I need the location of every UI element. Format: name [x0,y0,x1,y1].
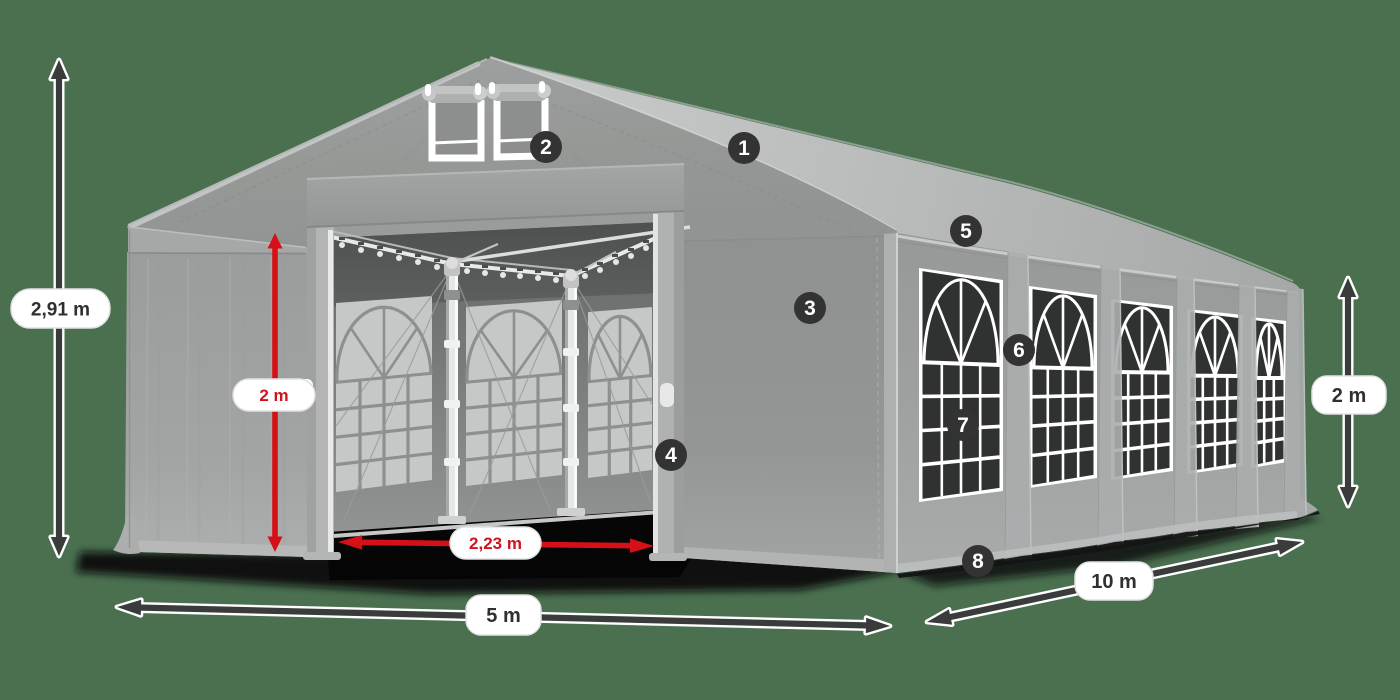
svg-text:6: 6 [1013,339,1025,362]
svg-text:2 m: 2 m [259,386,288,405]
svg-text:8: 8 [972,550,984,573]
svg-text:2,23 m: 2,23 m [469,534,522,553]
svg-text:7: 7 [957,414,969,437]
svg-text:5 m: 5 m [486,605,520,627]
svg-text:4: 4 [665,444,677,467]
svg-text:10 m: 10 m [1091,571,1137,593]
svg-text:3: 3 [804,297,816,320]
svg-text:1: 1 [738,137,750,160]
svg-text:5: 5 [960,220,972,243]
svg-text:2 m: 2 m [1332,385,1366,407]
svg-text:2: 2 [540,136,552,159]
svg-text:2,91 m: 2,91 m [31,299,90,320]
